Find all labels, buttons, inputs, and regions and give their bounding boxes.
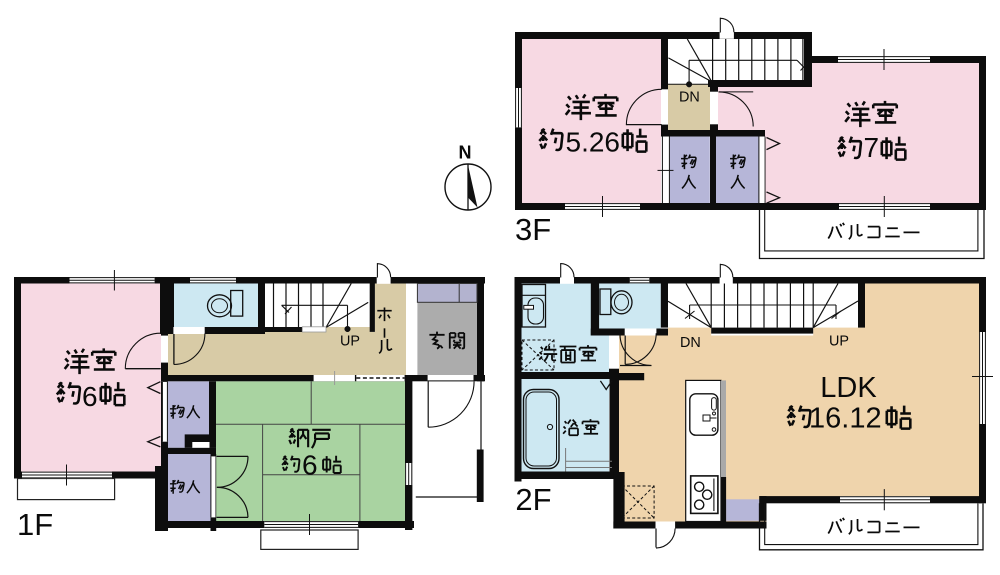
svg-text:2F: 2F — [515, 482, 551, 517]
svg-text:DN: DN — [680, 335, 701, 351]
svg-text:5.26: 5.26 — [566, 127, 621, 158]
svg-text:N: N — [459, 143, 472, 163]
svg-text:1F: 1F — [17, 507, 53, 542]
svg-text:DN: DN — [679, 90, 700, 106]
svg-text:7: 7 — [864, 132, 880, 163]
svg-text:UP: UP — [340, 333, 360, 349]
svg-text:3F: 3F — [515, 212, 551, 247]
svg-text:16.12: 16.12 — [809, 403, 882, 435]
svg-text:UP: UP — [829, 333, 849, 349]
svg-text:6: 6 — [82, 381, 98, 412]
svg-text:LDK: LDK — [820, 372, 877, 404]
svg-text:6: 6 — [302, 450, 318, 481]
